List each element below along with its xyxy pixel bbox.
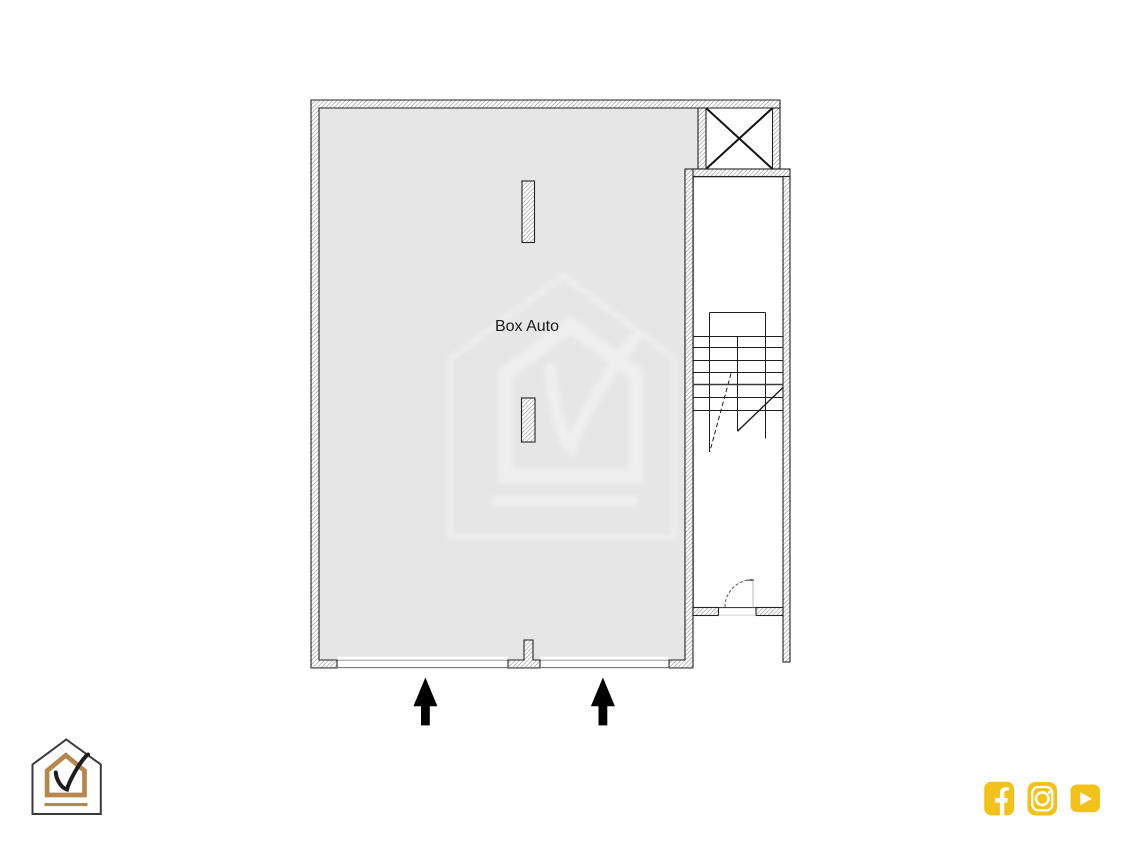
svg-text:Box Auto: Box Auto	[495, 318, 559, 335]
